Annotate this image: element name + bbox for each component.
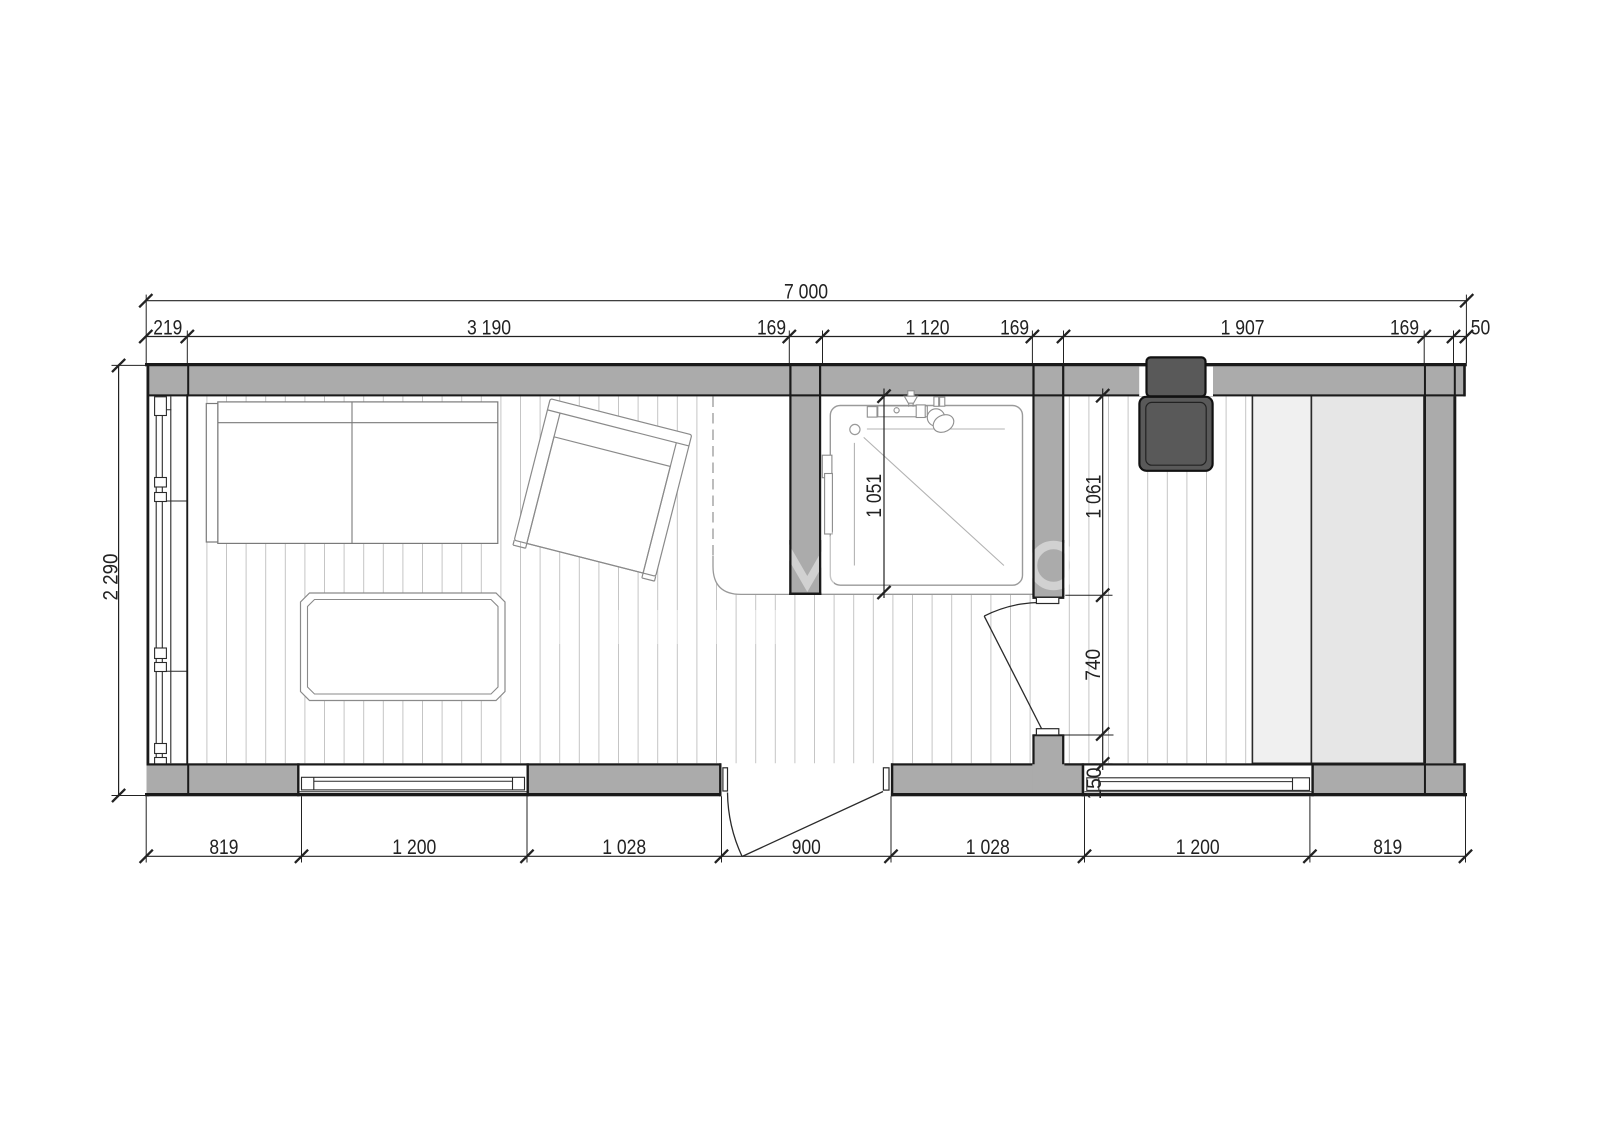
svg-text:819: 819: [209, 835, 238, 859]
svg-text:1 907: 1 907: [1221, 316, 1265, 340]
svg-text:819: 819: [1373, 835, 1402, 859]
svg-text:219: 219: [153, 316, 182, 340]
svg-text:1 051: 1 051: [862, 474, 886, 518]
svg-text:1 120: 1 120: [906, 316, 950, 340]
svg-text:169: 169: [1000, 316, 1029, 340]
svg-text:169: 169: [1390, 316, 1419, 340]
svg-text:150: 150: [1082, 767, 1106, 799]
svg-text:740: 740: [1081, 649, 1105, 681]
svg-text:900: 900: [792, 835, 821, 859]
svg-text:169: 169: [757, 316, 786, 340]
svg-text:1 200: 1 200: [392, 835, 436, 859]
svg-text:7 000: 7 000: [784, 280, 828, 304]
svg-text:50: 50: [1471, 316, 1491, 340]
svg-text:2 290: 2 290: [99, 553, 123, 600]
svg-text:1 028: 1 028: [966, 835, 1010, 859]
svg-text:1 200: 1 200: [1176, 835, 1220, 859]
svg-text:1 061: 1 061: [1082, 475, 1106, 519]
svg-text:3 190: 3 190: [467, 316, 511, 340]
svg-text:1 028: 1 028: [602, 835, 646, 859]
